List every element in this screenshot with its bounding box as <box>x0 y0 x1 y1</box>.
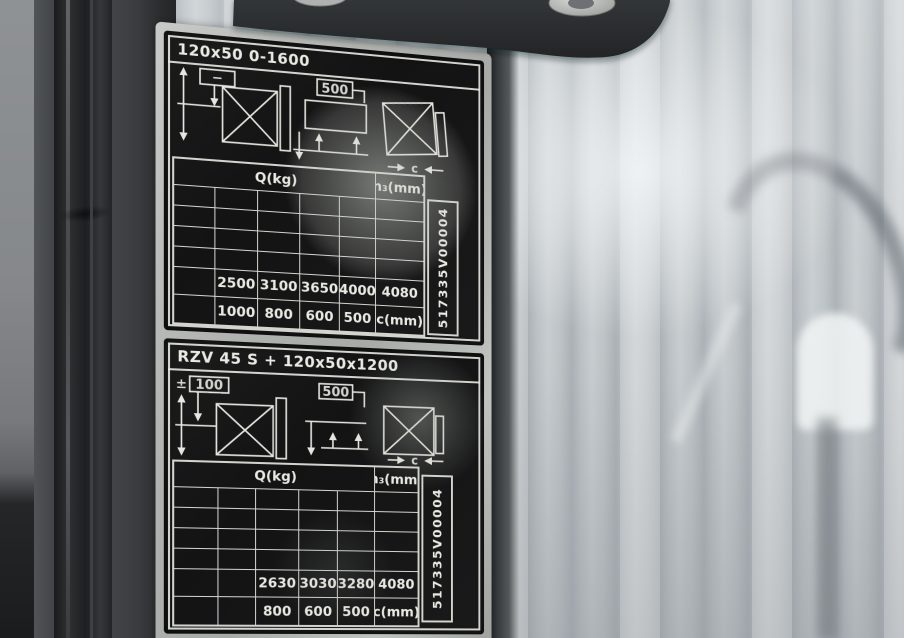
center-dim-label: 500 <box>323 385 350 401</box>
table-cell <box>300 254 340 276</box>
table-cell <box>256 550 299 571</box>
table-cell <box>174 508 218 529</box>
support-bar <box>487 32 520 638</box>
table-cell <box>375 552 418 572</box>
table-cell: 3030 <box>299 571 338 598</box>
table-cell <box>174 295 215 325</box>
rubber-seal <box>54 0 112 638</box>
load-diagram: ± 100 500 c <box>169 371 477 466</box>
plate-panel: 120x50 0-1600 <box>156 21 492 638</box>
table-cell <box>299 530 338 551</box>
load-center-label: c <box>411 454 418 467</box>
serial-number: 517335V00004 <box>430 488 444 609</box>
serial-number: 517335V00004 <box>436 207 450 329</box>
table-cell: 600 <box>299 598 338 625</box>
table-cell: h₃(mm) <box>375 467 418 493</box>
table-cell: 2500 <box>215 269 258 299</box>
load-box-right <box>383 103 448 157</box>
table-cell <box>215 249 258 272</box>
table-cell <box>258 191 300 214</box>
plus-minus-label: ± <box>176 377 187 393</box>
load-box-right <box>384 406 444 455</box>
table-cell <box>218 570 256 598</box>
table-cell <box>258 211 300 234</box>
table-cell <box>215 208 258 231</box>
table-cell: 800 <box>256 597 299 624</box>
cab-pillar-left <box>0 0 38 638</box>
table-cell: 3280 <box>338 571 375 598</box>
table-cell <box>256 509 299 530</box>
table-cell: 1000 <box>215 297 258 327</box>
table-cell <box>256 530 299 551</box>
table-cell <box>338 511 375 532</box>
window-reflection-streak <box>817 418 837 638</box>
load-box-left <box>216 396 286 459</box>
table-cell <box>375 492 418 513</box>
table-cell <box>338 551 375 571</box>
capacity-table: Q(kg)h₃(mm)25003100365040004080100080060… <box>172 156 425 337</box>
table-cell <box>340 257 376 279</box>
table-cell <box>174 487 218 508</box>
table-cell: 4080 <box>376 279 423 308</box>
table-cell <box>218 549 256 570</box>
table-cell: h₃(mm) <box>376 174 423 203</box>
table-cell <box>299 510 338 531</box>
photo-scene: 120x50 0-1600 <box>0 0 904 638</box>
mounting-bracket <box>220 0 690 80</box>
table-cell <box>174 226 215 249</box>
table-cell <box>218 509 256 530</box>
table-cell: 500 <box>340 304 376 333</box>
table-cell <box>174 205 215 228</box>
capacity-plate-bottom: RZV 45 S + 120x50x1200 <box>164 338 484 634</box>
table-cell <box>174 246 215 269</box>
table-cell <box>215 188 258 211</box>
table-cell: 4080 <box>375 572 418 599</box>
height-arrow <box>175 394 216 457</box>
serial-number-box: 517335V00004 <box>427 199 458 336</box>
table-cell: 600 <box>300 301 340 330</box>
table-cell <box>218 488 256 509</box>
table-cell <box>174 549 218 570</box>
load-box-left <box>223 81 291 151</box>
table-cell <box>299 490 338 511</box>
table-cell <box>340 197 376 219</box>
top-dim-label: 100 <box>195 378 223 394</box>
serial-number-box: 517335V00004 <box>421 475 452 623</box>
window-reflection-highlight <box>797 313 873 430</box>
rubber-seal-seam <box>57 203 112 225</box>
table-cell: 800 <box>258 299 300 328</box>
table-cell <box>299 551 338 572</box>
table-cell: 3650 <box>300 274 340 303</box>
table-cell <box>376 259 423 282</box>
table-cell <box>256 489 299 510</box>
table-cell <box>340 217 376 239</box>
table-cell <box>338 491 375 512</box>
table-cell: 500 <box>338 598 375 625</box>
table-cell: 4000 <box>340 277 376 306</box>
table-cell <box>215 229 258 252</box>
table-cell <box>300 214 340 237</box>
table-cell <box>174 528 218 549</box>
table-cell <box>174 185 215 208</box>
table-cell: 2630 <box>256 570 299 598</box>
center-dim-label: 500 <box>322 82 349 99</box>
table-cell <box>300 194 340 217</box>
table-cell <box>218 597 256 625</box>
table-cell <box>218 529 256 550</box>
table-cell <box>258 252 300 275</box>
table-cell <box>174 597 218 625</box>
panel-surface: 120x50 0-1600 <box>156 21 492 638</box>
table-cell <box>300 234 340 257</box>
table-cell <box>375 512 418 533</box>
table-cell: 3100 <box>258 272 300 302</box>
table-cell <box>258 231 300 254</box>
capacity-table: Q(kg)h₃(mm)2630303032804080800600500c(mm… <box>172 459 419 627</box>
table-cell <box>338 531 375 552</box>
table-cell <box>174 569 218 597</box>
table-cell <box>340 237 376 259</box>
table-cell: c(mm) <box>376 306 423 335</box>
table-cell <box>375 532 418 553</box>
table-cell: c(mm) <box>375 598 418 625</box>
table-cell <box>174 267 215 297</box>
